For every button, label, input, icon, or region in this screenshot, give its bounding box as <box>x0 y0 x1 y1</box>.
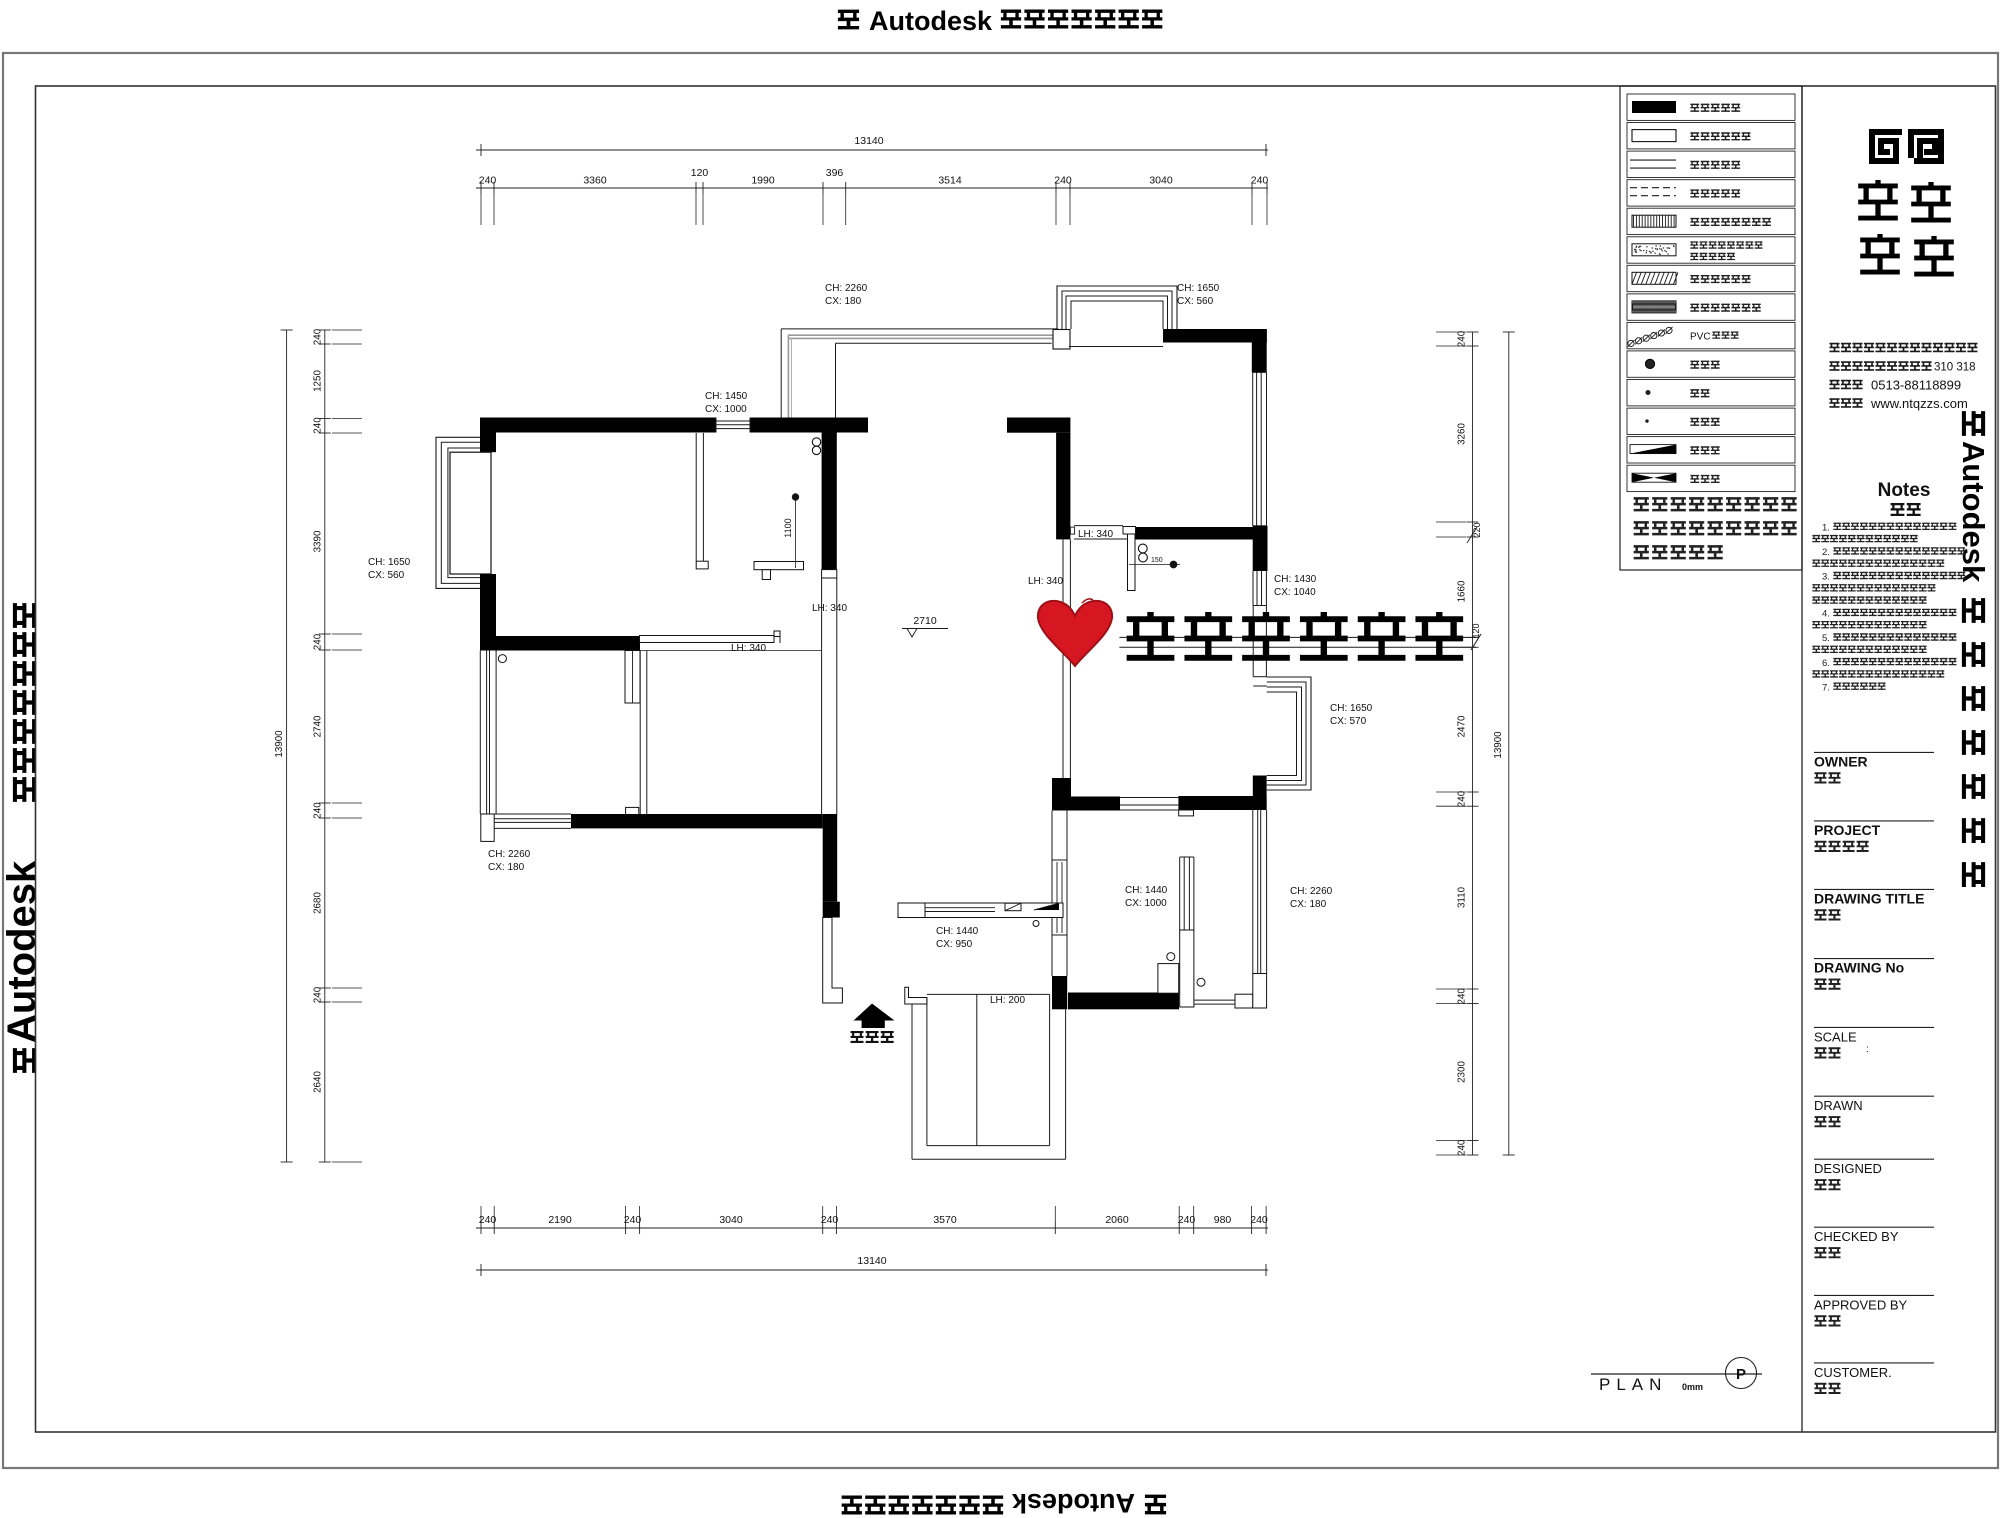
svg-text:240: 240 <box>313 802 324 819</box>
svg-text:2740: 2740 <box>313 715 324 737</box>
svg-text:2300: 2300 <box>1457 1061 1468 1083</box>
svg-text:OWNER: OWNER <box>1814 753 1868 769</box>
svg-text:Autodesk: Autodesk <box>1011 1488 1135 1518</box>
svg-text:CH: 1440: CH: 1440 <box>936 926 979 937</box>
svg-text:www.ntqzzs.com: www.ntqzzs.com <box>1870 396 1968 411</box>
svg-text:3.: 3. <box>1822 572 1830 583</box>
svg-text:2.: 2. <box>1822 547 1830 558</box>
svg-text:CH: 2260: CH: 2260 <box>825 283 868 294</box>
svg-text:5.: 5. <box>1822 633 1830 644</box>
svg-text:Autodesk: Autodesk <box>869 6 993 36</box>
svg-text:240: 240 <box>1251 175 1269 187</box>
svg-text:PVC: PVC <box>1690 331 1711 342</box>
svg-text:CH: 1430: CH: 1430 <box>1274 574 1317 585</box>
svg-text:1660: 1660 <box>1457 580 1468 602</box>
svg-text:LH: 340: LH: 340 <box>1028 576 1063 587</box>
svg-text:3570: 3570 <box>933 1214 957 1226</box>
svg-text:240: 240 <box>313 986 324 1003</box>
svg-text:240: 240 <box>313 328 324 345</box>
svg-text:240: 240 <box>1178 1214 1196 1226</box>
svg-text:CX: 1000: CX: 1000 <box>705 404 747 415</box>
svg-text:3260: 3260 <box>1457 423 1468 445</box>
svg-text:240: 240 <box>821 1214 839 1226</box>
svg-text:CHECKED BY: CHECKED BY <box>1814 1229 1899 1244</box>
svg-text:240: 240 <box>313 417 324 434</box>
svg-text:2640: 2640 <box>313 1071 324 1093</box>
svg-text:1990: 1990 <box>751 175 775 187</box>
svg-text:LH: 340: LH: 340 <box>1078 529 1113 540</box>
svg-text:6.: 6. <box>1822 658 1830 669</box>
svg-text:3040: 3040 <box>1149 175 1173 187</box>
svg-text:DESIGNED: DESIGNED <box>1814 1161 1882 1176</box>
svg-text:CH: 1650: CH: 1650 <box>1177 283 1220 294</box>
svg-text:1250: 1250 <box>313 370 324 392</box>
svg-text:13900: 13900 <box>274 730 285 758</box>
svg-text:3514: 3514 <box>938 175 962 187</box>
svg-text:CX: 180: CX: 180 <box>488 862 525 873</box>
svg-text:2710: 2710 <box>913 615 937 627</box>
svg-text:13140: 13140 <box>857 1255 886 1267</box>
svg-text:CX: 560: CX: 560 <box>368 570 405 581</box>
svg-text:3390: 3390 <box>313 530 324 552</box>
svg-text:4.: 4. <box>1822 609 1830 620</box>
svg-text:3040: 3040 <box>719 1214 743 1226</box>
svg-text:LH: 340: LH: 340 <box>812 603 847 614</box>
svg-text:3110: 3110 <box>1457 886 1468 908</box>
svg-text:CX: 570: CX: 570 <box>1330 716 1367 727</box>
svg-text:240: 240 <box>313 633 324 650</box>
svg-text:CH: 1440: CH: 1440 <box>1125 885 1168 896</box>
svg-text:2190: 2190 <box>548 1214 572 1226</box>
svg-text:1.: 1. <box>1822 523 1830 534</box>
svg-text:310 318: 310 318 <box>1934 362 1976 374</box>
svg-text:2060: 2060 <box>1105 1214 1129 1226</box>
svg-text:1100: 1100 <box>783 518 793 537</box>
svg-text:240: 240 <box>624 1214 642 1226</box>
svg-text:PROJECT: PROJECT <box>1814 822 1881 838</box>
svg-text:Autodesk: Autodesk <box>1956 441 1991 583</box>
svg-text:240: 240 <box>1054 175 1072 187</box>
svg-text:CH: 1450: CH: 1450 <box>705 391 748 402</box>
svg-text:150: 150 <box>1151 557 1163 564</box>
svg-text:CX: 1000: CX: 1000 <box>1125 898 1167 909</box>
svg-text:DRAWN: DRAWN <box>1814 1098 1863 1113</box>
svg-text:DRAWING TITLE: DRAWING TITLE <box>1814 890 1924 906</box>
svg-text:240: 240 <box>479 175 497 187</box>
svg-text:2470: 2470 <box>1457 715 1468 737</box>
svg-text:SCALE: SCALE <box>1814 1029 1857 1044</box>
svg-text:3360: 3360 <box>583 175 607 187</box>
svg-text:240: 240 <box>1250 1214 1268 1226</box>
svg-text:APPROVED BY: APPROVED BY <box>1814 1297 1908 1312</box>
svg-text:13140: 13140 <box>854 135 883 147</box>
svg-text:2680: 2680 <box>313 892 324 914</box>
svg-text:LH: 200: LH: 200 <box>990 995 1025 1006</box>
svg-text:CX: 950: CX: 950 <box>936 939 973 950</box>
svg-text:DRAWING No: DRAWING No <box>1814 960 1904 976</box>
svg-text:240: 240 <box>1457 790 1468 807</box>
svg-text:13900: 13900 <box>1493 731 1504 759</box>
svg-text:CH: 1650: CH: 1650 <box>1330 703 1373 714</box>
svg-text:7.: 7. <box>1822 682 1830 693</box>
svg-text:980: 980 <box>1214 1214 1232 1226</box>
svg-text:CH: 2260: CH: 2260 <box>1290 886 1333 897</box>
svg-text:CX: 180: CX: 180 <box>1290 899 1327 910</box>
svg-text:240: 240 <box>1457 330 1468 347</box>
svg-text:0513-88118899: 0513-88118899 <box>1871 378 1961 393</box>
svg-text:CX: 560: CX: 560 <box>1177 296 1214 307</box>
svg-text:240: 240 <box>1457 988 1468 1005</box>
svg-text:LH: 340: LH: 340 <box>731 643 766 654</box>
svg-text:120: 120 <box>691 167 709 179</box>
svg-text:396: 396 <box>826 167 844 179</box>
svg-text:CUSTOMER.: CUSTOMER. <box>1814 1365 1892 1380</box>
svg-text:0mm: 0mm <box>1682 1382 1703 1392</box>
svg-text::: : <box>1866 1044 1869 1055</box>
svg-text:240: 240 <box>1457 1139 1468 1156</box>
svg-text:CX: 180: CX: 180 <box>825 296 862 307</box>
svg-text:CX: 1040: CX: 1040 <box>1274 587 1316 598</box>
svg-text:Autodesk: Autodesk <box>0 860 44 1043</box>
svg-text:P: P <box>1736 1366 1746 1383</box>
svg-text:CH: 2260: CH: 2260 <box>488 849 531 860</box>
svg-text:Notes: Notes <box>1878 480 1931 501</box>
svg-text:CH: 1650: CH: 1650 <box>368 557 411 568</box>
svg-text:PLAN: PLAN <box>1599 1375 1667 1394</box>
svg-text:220: 220 <box>1472 522 1482 537</box>
svg-text:240: 240 <box>479 1214 497 1226</box>
